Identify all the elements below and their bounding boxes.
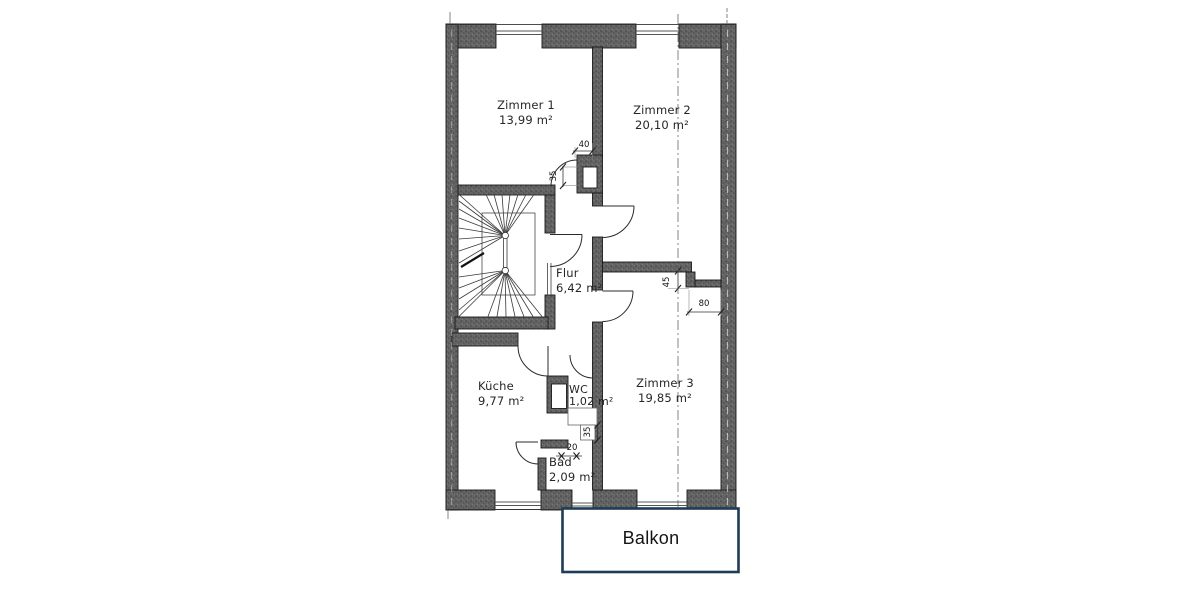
dimension-label-20: 20 — [567, 443, 578, 453]
room-name: Bad — [549, 455, 595, 470]
room-label-balkon: Balkon — [623, 528, 680, 549]
balcony-door-bad — [572, 503, 593, 506]
room-label-kueche: Küche 9,77 m² — [478, 379, 524, 409]
room-area: 1,02 m² — [569, 396, 614, 408]
room-name: Küche — [478, 379, 524, 394]
room-name: Zimmer 1 — [497, 98, 555, 113]
room-label-bad: Bad 2,09 m² — [549, 455, 595, 485]
dimension-label-80: 80 — [699, 299, 710, 309]
stair-spine — [502, 232, 508, 273]
dimension-label-35-wc: 35 — [583, 427, 593, 438]
door-staircase — [550, 235, 582, 267]
room-name: WC — [569, 384, 614, 396]
door-zimmer3 — [603, 291, 634, 322]
dimension-label-45: 45 — [662, 277, 672, 288]
dimension-label-35-shaft: 35 — [549, 171, 559, 182]
room-area: 6,42 m² — [556, 281, 602, 296]
stair-treads-lower — [459, 271, 542, 317]
window-kueche — [495, 502, 541, 506]
room-label-zimmer-1: Zimmer 1 13,99 m² — [497, 98, 555, 128]
room-name: Zimmer 2 — [633, 103, 691, 118]
room-area: 2,09 m² — [549, 470, 595, 485]
room-label-flur: Flur 6,42 m² — [556, 266, 602, 296]
room-label-zimmer-3: Zimmer 3 19,85 m² — [636, 376, 694, 406]
stair-treads-upper — [459, 195, 534, 264]
window-zimmer3 — [637, 502, 687, 506]
room-name: Flur — [556, 266, 602, 281]
room-label-zimmer-2: Zimmer 2 20,10 m² — [633, 103, 691, 133]
floor-plan: Zimmer 1 13,99 m² Zimmer 2 20,10 m² Flur… — [0, 0, 1200, 600]
stair-partition — [548, 263, 552, 295]
door-bad — [516, 442, 538, 464]
door-wc — [570, 355, 593, 378]
room-name: Zimmer 3 — [636, 376, 694, 391]
room-area: 13,99 m² — [497, 113, 555, 128]
room-area: 20,10 m² — [633, 118, 691, 133]
room-area: 19,85 m² — [636, 391, 694, 406]
dimension-label-40: 40 — [579, 140, 590, 150]
window-zimmer2 — [636, 31, 679, 35]
door-kueche — [518, 346, 548, 376]
room-label-wc: WC 1,02 m² — [569, 384, 614, 407]
room-area: 9,77 m² — [478, 394, 524, 409]
floor-plan-drawing — [0, 0, 1200, 600]
door-zimmer2 — [603, 206, 635, 238]
window-zimmer1 — [496, 31, 542, 35]
staircase — [459, 195, 542, 317]
